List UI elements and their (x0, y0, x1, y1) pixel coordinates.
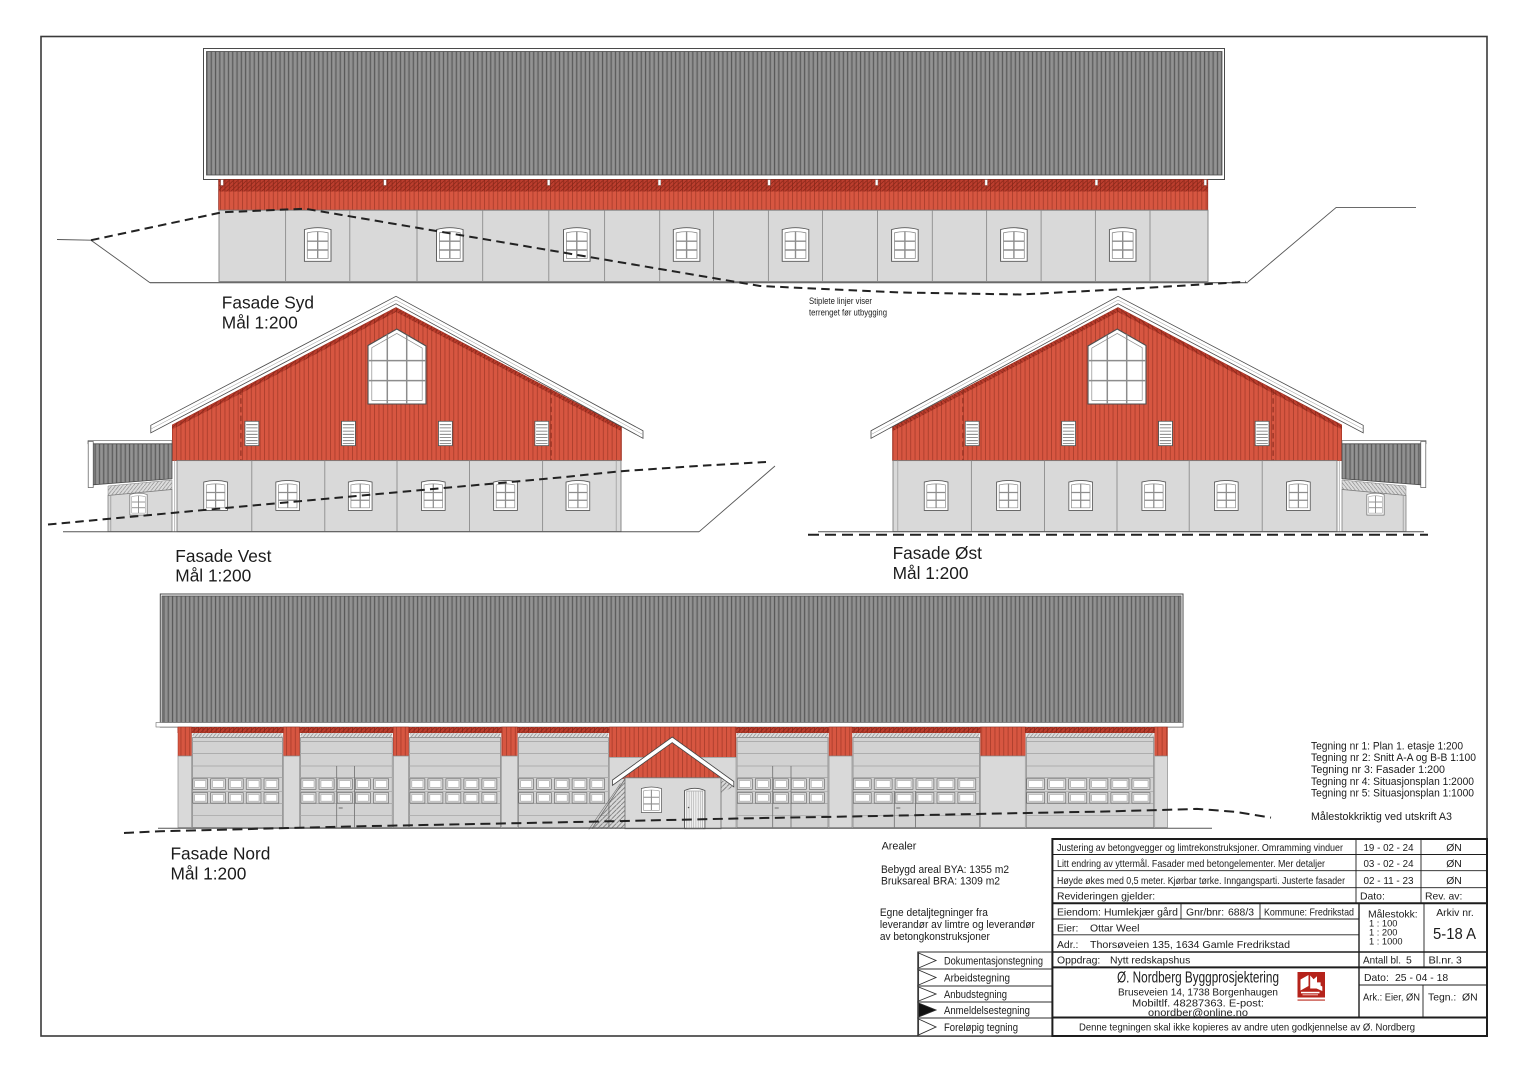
svg-text:Tegning nr 5: Situasjonsplan 1: Tegning nr 5: Situasjonsplan 1:1000 (1311, 788, 1474, 800)
svg-text:1 : 1000: 1 : 1000 (1369, 937, 1403, 947)
svg-text:Ø. Nordberg Byggprosjektering: Ø. Nordberg Byggprosjektering (1117, 970, 1279, 987)
svg-text:Arbeidstegning: Arbeidstegning (944, 972, 1010, 984)
svg-text:Anbudstegning: Anbudstegning (944, 989, 1007, 1001)
svg-text:Litt endring av yttermål. Fasa: Litt endring av yttermål. Fasader med be… (1057, 858, 1325, 870)
svg-text:25 - 04 - 18: 25 - 04 - 18 (1395, 973, 1448, 984)
svg-text:19 - 02 - 24: 19 - 02 - 24 (1364, 843, 1414, 854)
svg-text:Mål 1:200: Mål 1:200 (893, 563, 969, 583)
svg-text:Tegning nr 3: Fasader 1:200: Tegning nr 3: Fasader 1:200 (1311, 764, 1445, 776)
svg-text:leverandør av limtre og levera: leverandør av limtre og leverandør (880, 919, 1035, 931)
svg-text:3: 3 (1456, 955, 1462, 966)
svg-text:Anmeldelsestegning: Anmeldelsestegning (944, 1005, 1030, 1017)
svg-text:av betongkonstruksjoner: av betongkonstruksjoner (880, 931, 990, 943)
svg-text:onordber@online.no: onordber@online.no (1148, 1008, 1248, 1019)
svg-text:Eier:: Eier: (1057, 923, 1078, 934)
svg-text:Foreløpig tegning: Foreløpig tegning (944, 1022, 1018, 1034)
svg-text:Bruseveien 14, 1738 Borgenhaug: Bruseveien 14, 1738 Borgenhaugen (1118, 988, 1278, 999)
svg-text:Tegn.:: Tegn.: (1428, 992, 1456, 1003)
svg-text:Målestokkriktig ved utskrift A: Målestokkriktig ved utskrift A3 (1311, 811, 1452, 823)
svg-text:Fasade Øst: Fasade Øst (893, 543, 983, 563)
svg-text:Fasade Nord: Fasade Nord (171, 843, 271, 863)
svg-text:Arealer: Arealer (882, 840, 917, 852)
svg-text:Mål 1:200: Mål 1:200 (175, 565, 251, 585)
svg-text:Tegning nr 4: Situasjonsplan 1: Tegning nr 4: Situasjonsplan 1:2000 (1311, 776, 1474, 788)
svg-text:Ottar Weel: Ottar Weel (1090, 923, 1139, 934)
svg-text:Fasade Vest: Fasade Vest (175, 546, 271, 566)
svg-text:Gnr/bnr:: Gnr/bnr: (1186, 908, 1224, 919)
svg-text:Denne tegningen skal ikke kopi: Denne tegningen skal ikke kopieres av an… (1079, 1023, 1415, 1034)
svg-text:Nytt redskapshus: Nytt redskapshus (1110, 955, 1190, 966)
svg-text:Stiplete linjer viser: Stiplete linjer viser (809, 296, 873, 307)
svg-text:Eiendom:: Eiendom: (1057, 908, 1101, 919)
svg-text:5: 5 (1406, 955, 1412, 966)
svg-text:Revideringen gjelder:: Revideringen gjelder: (1057, 892, 1155, 903)
svg-text:Tegning nr 1: Plan 1. etasje 1: Tegning nr 1: Plan 1. etasje 1:200 (1311, 740, 1463, 752)
svg-text:ØN: ØN (1446, 843, 1462, 854)
svg-text:Bl.nr.: Bl.nr. (1429, 955, 1454, 966)
svg-text:Mål 1:200: Mål 1:200 (222, 312, 298, 332)
svg-text:Humlekjær gård: Humlekjær gård (1104, 907, 1178, 919)
svg-text:02 - 11 - 23: 02 - 11 - 23 (1364, 876, 1414, 887)
svg-text:Justering av betongvegger og l: Justering av betongvegger og limtrekonst… (1057, 843, 1343, 854)
svg-text:Adr.:: Adr.: (1057, 940, 1078, 951)
svg-text:Tegning nr 2: Snitt A-A og B-B: Tegning nr 2: Snitt A-A og B-B 1:100 (1311, 752, 1476, 764)
svg-text:ØN: ØN (1446, 859, 1462, 870)
svg-text:Rev. av:: Rev. av: (1425, 892, 1462, 903)
svg-text:688/3: 688/3 (1228, 908, 1254, 919)
svg-text:Bebygd areal BYA: 1355 m2: Bebygd areal BYA: 1355 m2 (881, 864, 1009, 876)
svg-text:Arkiv nr.: Arkiv nr. (1436, 908, 1474, 919)
svg-text:Fasade Syd: Fasade Syd (222, 293, 314, 313)
svg-text:Høyde økes med 0,5 meter. Kjør: Høyde økes med 0,5 meter. Kjørbar tørke.… (1057, 876, 1345, 887)
svg-text:Egne detaljtegninger fra: Egne detaljtegninger fra (880, 907, 988, 919)
svg-text:ØN: ØN (1462, 992, 1478, 1003)
svg-text:Antall bl.: Antall bl. (1363, 955, 1401, 966)
svg-text:Thorsøveien 135, 1634 Gamle Fr: Thorsøveien 135, 1634 Gamle Fredrikstad (1090, 940, 1290, 951)
svg-text:Bruksareal BRA: 1309 m2: Bruksareal BRA: 1309 m2 (881, 875, 1000, 887)
svg-text:Dato:: Dato: (1364, 973, 1389, 984)
svg-text:Mål 1:200: Mål 1:200 (171, 863, 247, 883)
svg-text:ØN: ØN (1446, 876, 1462, 887)
svg-text:Ark.: Eier, ØN: Ark.: Eier, ØN (1363, 992, 1420, 1003)
svg-text:Oppdrag:: Oppdrag: (1057, 955, 1100, 966)
svg-text:Kommune: Fredrikstad: Kommune: Fredrikstad (1264, 908, 1354, 919)
svg-text:Dato:: Dato: (1360, 892, 1385, 903)
svg-text:03 - 02 - 24: 03 - 02 - 24 (1364, 859, 1414, 870)
svg-text:5-18 A: 5-18 A (1433, 926, 1476, 943)
svg-text:Dokumentasjonstegning: Dokumentasjonstegning (944, 955, 1043, 967)
svg-text:terrenget før utbygging: terrenget før utbygging (809, 308, 887, 319)
